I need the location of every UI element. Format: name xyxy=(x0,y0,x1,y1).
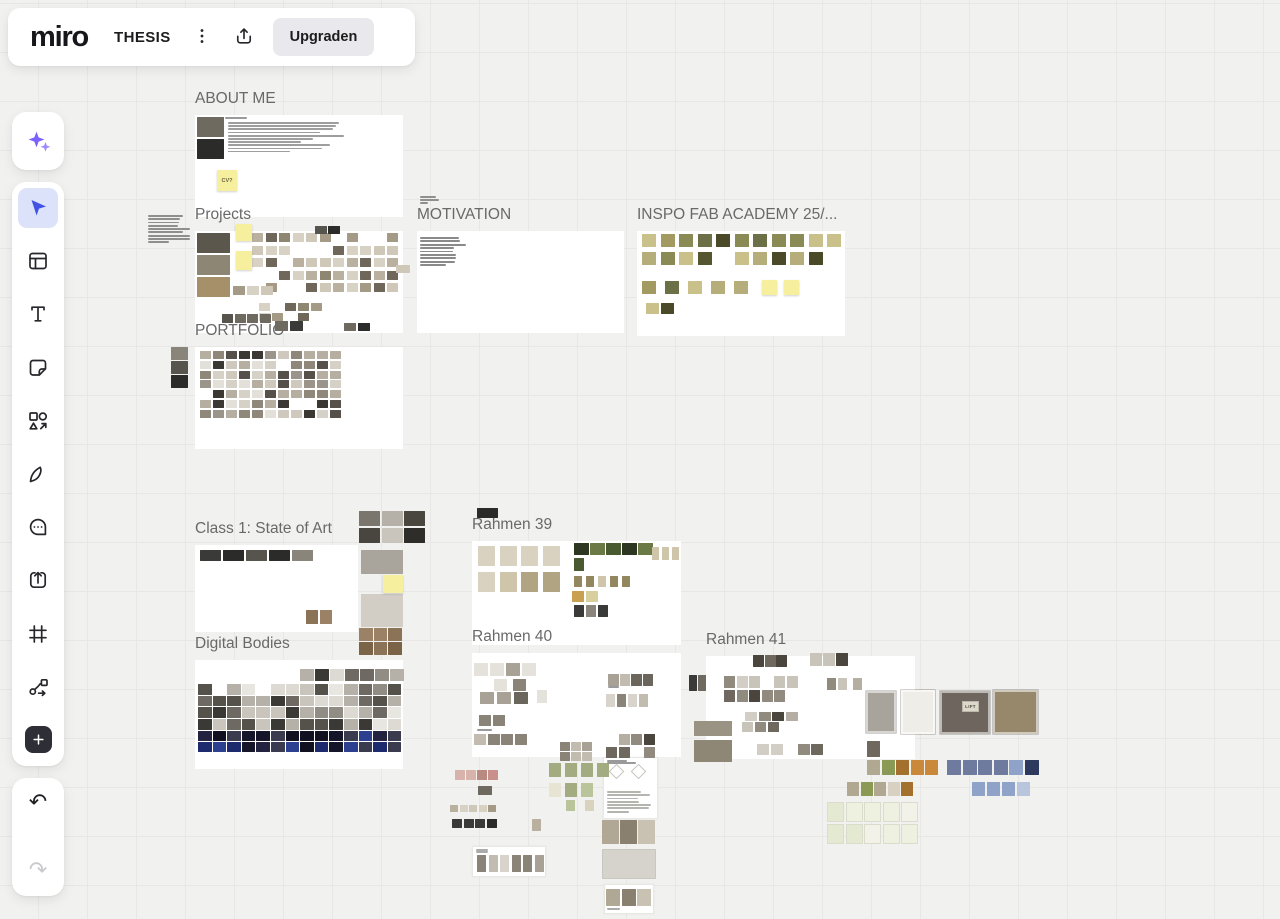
thumbnail-image xyxy=(315,742,329,752)
thumbnail-image xyxy=(213,400,224,408)
image-cluster[interactable] xyxy=(480,692,528,704)
thumbnail-image xyxy=(272,313,283,321)
thumbnail-image xyxy=(344,323,356,331)
text-tool[interactable] xyxy=(18,294,58,334)
thumbnail-image xyxy=(252,233,263,242)
image-cluster[interactable] xyxy=(866,691,896,733)
thumbnail-image xyxy=(745,712,757,721)
image-cluster[interactable] xyxy=(972,782,1030,796)
image-cluster[interactable] xyxy=(478,546,560,592)
thumbnail-image xyxy=(500,855,509,872)
thumbnail-image xyxy=(811,744,823,755)
thumbnail-image xyxy=(226,390,237,398)
thumbnail-image xyxy=(329,684,343,695)
thumbnail-image xyxy=(689,675,697,691)
upgrade-button[interactable]: Upgraden xyxy=(273,18,375,56)
thumbnail-image xyxy=(776,655,787,667)
thumbnail-image xyxy=(315,684,329,695)
text-block[interactable] xyxy=(607,908,621,911)
thumbnail-image xyxy=(734,281,748,294)
image-cluster[interactable] xyxy=(233,286,273,295)
thumbnail-image xyxy=(306,610,318,624)
image-cluster[interactable] xyxy=(361,594,403,627)
frame-title-class-1-state-of-art[interactable]: Class 1: State of Art xyxy=(195,519,332,539)
thumbnail-image xyxy=(698,675,706,691)
frame-title-portfolio[interactable]: PORTFOLIO xyxy=(195,321,284,341)
thumbnail-image xyxy=(306,283,317,292)
thumbnail-image xyxy=(735,234,749,247)
creation-toolbar xyxy=(12,182,64,766)
thumbnail-image xyxy=(360,271,371,280)
thumbnail-image xyxy=(239,380,250,388)
thumbnail-image xyxy=(477,855,486,872)
connector-tool[interactable] xyxy=(18,667,58,707)
thumbnail-image xyxy=(278,410,289,418)
image-cluster[interactable] xyxy=(359,628,402,655)
thumbnail-image xyxy=(901,782,913,796)
thumbnail-image xyxy=(631,674,642,686)
thumbnail-image xyxy=(227,696,241,707)
image-cluster[interactable] xyxy=(853,678,862,690)
thumbnail-image xyxy=(247,314,258,323)
thumbnail-image xyxy=(252,371,263,379)
thumbnail-image xyxy=(608,674,619,686)
thumbnail-image xyxy=(242,742,256,752)
thumbnail-image xyxy=(198,719,212,730)
thumbnail-image xyxy=(488,734,500,745)
frame-title-projects[interactable]: Projects xyxy=(195,205,251,225)
thumbnail-image xyxy=(375,669,389,681)
image-cluster[interactable] xyxy=(689,675,706,691)
image-cluster[interactable] xyxy=(602,820,655,844)
thumbnail-image xyxy=(515,734,527,745)
thumbnail-image xyxy=(226,371,237,379)
text-block[interactable] xyxy=(476,849,492,854)
thumbnail-image xyxy=(597,763,609,777)
thumbnail-image xyxy=(344,731,358,741)
image-cluster[interactable] xyxy=(745,712,798,721)
thumbnail-image xyxy=(883,802,900,822)
image-cluster[interactable] xyxy=(602,849,656,879)
thumbnail-image xyxy=(359,707,373,718)
text-block[interactable] xyxy=(477,729,492,732)
image-cluster[interactable] xyxy=(742,722,779,732)
thumbnail-image xyxy=(771,744,783,755)
thumbnail-image xyxy=(478,572,495,592)
comment-tool[interactable] xyxy=(18,507,58,547)
image-cluster[interactable] xyxy=(477,508,498,518)
image-cluster[interactable] xyxy=(827,802,918,844)
shapes-tool[interactable] xyxy=(18,401,58,441)
thumbnail-image xyxy=(477,770,487,780)
image-cluster[interactable] xyxy=(477,855,544,872)
thumbnail-image xyxy=(772,252,786,265)
thumbnail-image xyxy=(474,663,488,676)
thumbnail-image xyxy=(772,712,784,721)
thumbnail-image xyxy=(514,692,528,704)
image-cluster[interactable] xyxy=(197,117,224,159)
thumbnail-image xyxy=(223,550,244,561)
image-cluster[interactable] xyxy=(606,889,651,906)
image-cluster[interactable] xyxy=(646,303,674,314)
thumbnail-image xyxy=(574,543,589,555)
image-cluster[interactable] xyxy=(396,265,410,273)
thumbnail-image xyxy=(716,234,730,247)
thumbnail-image xyxy=(494,679,507,691)
board-canvas[interactable]: ABOUT MEProjectsMOTIVATIONINSPO FAB ACAD… xyxy=(0,0,1280,919)
image-cluster[interactable] xyxy=(198,684,401,730)
thumbnail-image xyxy=(571,742,581,751)
image-cluster[interactable] xyxy=(694,740,732,762)
thumbnail-image xyxy=(478,786,492,795)
image-cluster[interactable] xyxy=(315,226,340,234)
image-cluster[interactable] xyxy=(200,550,313,561)
sticky-note[interactable] xyxy=(762,280,777,295)
image-cluster[interactable] xyxy=(574,543,653,555)
thumbnail-image xyxy=(882,760,895,775)
thumbnail-image xyxy=(373,719,387,730)
image-cluster[interactable] xyxy=(474,734,527,745)
thumbnail-image xyxy=(198,742,212,752)
thumbnail-image xyxy=(266,246,277,255)
thumbnail-image xyxy=(300,731,314,741)
thumbnail-image xyxy=(347,233,358,242)
image-cluster[interactable] xyxy=(993,690,1038,734)
text-block[interactable] xyxy=(148,215,191,245)
thumbnail-image xyxy=(286,731,300,741)
image-cluster[interactable] xyxy=(867,760,938,775)
image-cluster[interactable] xyxy=(200,351,341,418)
thumbnail-image xyxy=(286,696,300,707)
thumbnail-image xyxy=(474,734,486,745)
thumbnail-image xyxy=(222,314,233,323)
thumbnail-image xyxy=(809,252,823,265)
thumbnail-image xyxy=(260,314,271,323)
thumbnail-image xyxy=(724,676,735,688)
image-cluster[interactable] xyxy=(827,678,847,690)
ai-assistant-button[interactable] xyxy=(18,121,58,161)
app-header: miro THESIS Upgraden xyxy=(8,8,415,66)
thumbnail-image xyxy=(742,722,753,732)
thumbnail-image xyxy=(271,696,285,707)
cursor-icon xyxy=(26,196,50,220)
thumbnail-image xyxy=(374,283,385,292)
thumbnail-image xyxy=(382,528,403,543)
thumbnail-image xyxy=(293,233,304,242)
image-cluster[interactable] xyxy=(642,234,841,265)
frame-title-rahmen-41[interactable]: Rahmen 41 xyxy=(706,630,786,650)
thumbnail-image xyxy=(213,707,227,718)
text-block[interactable] xyxy=(607,760,639,765)
thumbnail-image xyxy=(242,707,256,718)
frame-title-digital-bodies[interactable]: Digital Bodies xyxy=(195,634,290,654)
thumbnail-image xyxy=(489,855,498,872)
thumbnail-image xyxy=(846,824,863,844)
thumbnail-image xyxy=(644,734,655,745)
thumbnail-image xyxy=(637,889,651,906)
image-cluster[interactable] xyxy=(757,744,823,755)
image-cluster[interactable] xyxy=(452,819,497,828)
thumbnail-image xyxy=(523,855,532,872)
thumbnail-image xyxy=(606,694,615,707)
thumbnail-image xyxy=(735,252,749,265)
thumbnail-image xyxy=(500,546,517,566)
thumbnail-image xyxy=(574,605,584,617)
board-title[interactable]: THESIS xyxy=(114,29,171,46)
thumbnail-image xyxy=(479,805,487,812)
thumbnail-image xyxy=(620,674,631,686)
image-cluster[interactable] xyxy=(222,314,271,323)
thumbnail-image xyxy=(566,800,575,811)
export-button[interactable] xyxy=(227,20,261,54)
thumbnail-image xyxy=(549,763,561,777)
image-cluster[interactable] xyxy=(198,731,401,752)
sticky-note[interactable] xyxy=(784,280,799,295)
thumbnail-image xyxy=(293,258,304,267)
thumbnail-image xyxy=(300,684,314,695)
image-cluster[interactable] xyxy=(455,770,498,780)
thumbnail-image xyxy=(388,684,402,695)
thumbnail-image xyxy=(488,770,498,780)
thumbnail-image xyxy=(711,281,725,294)
thumbnail-image xyxy=(628,694,637,707)
text-block[interactable] xyxy=(608,686,621,689)
thumbnail-image xyxy=(317,390,328,398)
image-cluster[interactable] xyxy=(171,347,188,388)
board-menu-button[interactable] xyxy=(185,20,219,54)
thumbnail-image xyxy=(330,669,344,681)
text-block[interactable] xyxy=(228,122,345,154)
text-block[interactable] xyxy=(420,237,469,268)
thumbnail-image xyxy=(359,628,373,641)
image-cluster[interactable] xyxy=(532,819,541,831)
image-cluster[interactable] xyxy=(197,233,230,297)
thumbnail-image xyxy=(317,351,328,359)
miro-logo[interactable]: miro xyxy=(30,23,88,52)
image-cluster[interactable] xyxy=(642,281,771,294)
thumbnail-image xyxy=(261,286,273,295)
image-cluster[interactable] xyxy=(810,653,848,666)
thumbnail-image xyxy=(374,628,388,641)
frame-title-inspo-fab-academy[interactable]: INSPO FAB ACADEMY 25/... xyxy=(637,205,837,225)
thumbnail-image xyxy=(330,380,341,388)
thumbnail-image xyxy=(574,558,584,571)
image-cluster[interactable] xyxy=(306,610,332,624)
thumbnail-image xyxy=(213,410,224,418)
thumbnail-image xyxy=(359,642,373,655)
thumbnail-image xyxy=(344,684,358,695)
image-cluster[interactable] xyxy=(847,782,913,796)
image-cluster[interactable] xyxy=(300,669,404,681)
text-block[interactable] xyxy=(225,117,249,120)
select-tool[interactable] xyxy=(18,188,58,228)
text-block[interactable] xyxy=(420,196,440,205)
thumbnail-image xyxy=(679,234,693,247)
thumbnail-image xyxy=(320,271,331,280)
thumbnail-image xyxy=(200,361,211,369)
thumbnail-image xyxy=(387,233,398,242)
thumbnail-image xyxy=(246,550,267,561)
thumbnail-image xyxy=(661,234,675,247)
thumbnail-image xyxy=(317,361,328,369)
thumbnail-image xyxy=(787,676,798,688)
thumbnail-image xyxy=(963,760,977,775)
thumbnail-image xyxy=(469,805,477,812)
frame-title-about-me[interactable]: ABOUT ME xyxy=(195,89,276,109)
thumbnail-image xyxy=(252,380,263,388)
thumbnail-image xyxy=(198,696,212,707)
image-cluster[interactable] xyxy=(479,715,505,726)
thumbnail-image xyxy=(388,707,402,718)
thumbnail-image xyxy=(571,752,581,761)
thumbnail-image xyxy=(522,663,536,676)
thumbnail-image xyxy=(213,719,227,730)
thumbnail-image xyxy=(867,741,880,757)
thumbnail-image xyxy=(759,712,771,721)
redo-button[interactable]: ↷ xyxy=(29,860,47,882)
thumbnail-image xyxy=(574,576,582,587)
sticky-note[interactable] xyxy=(236,251,252,270)
sticky-note[interactable] xyxy=(383,575,403,593)
frame-title-rahmen-40[interactable]: Rahmen 40 xyxy=(472,627,552,647)
image-cluster[interactable] xyxy=(572,591,598,602)
image-cluster[interactable] xyxy=(608,674,653,686)
thumbnail-image xyxy=(252,390,263,398)
image-cluster[interactable] xyxy=(867,741,880,757)
text-block[interactable] xyxy=(607,791,653,814)
image-cluster[interactable] xyxy=(560,742,592,761)
sticky-note-tool[interactable] xyxy=(18,348,58,388)
thumbnail-image xyxy=(487,819,497,828)
thumbnail-image xyxy=(213,351,224,359)
templates-tool[interactable] xyxy=(18,241,58,281)
frame-tool[interactable] xyxy=(18,614,58,654)
image-cluster[interactable] xyxy=(574,605,608,617)
image-cluster[interactable] xyxy=(574,558,584,571)
thumbnail-image xyxy=(344,719,358,730)
thumbnail-image xyxy=(993,690,1038,734)
thumbnail-image xyxy=(330,390,341,398)
thumbnail-image xyxy=(374,271,385,280)
thumbnail-image xyxy=(606,747,617,758)
image-cluster[interactable] xyxy=(753,655,787,667)
thumbnail-image xyxy=(646,303,659,314)
thumbnail-image xyxy=(790,252,804,265)
image-cluster[interactable] xyxy=(574,576,630,587)
thumbnail-image xyxy=(359,684,373,695)
thumbnail-image xyxy=(765,655,776,667)
thumbnail-image xyxy=(643,674,654,686)
thumbnail-image xyxy=(278,351,289,359)
thumbnail-image xyxy=(972,782,985,796)
image-cluster[interactable] xyxy=(275,321,303,331)
image-cluster[interactable] xyxy=(652,547,679,560)
image-cluster[interactable] xyxy=(549,763,609,797)
image-cluster[interactable] xyxy=(694,721,732,736)
image-cluster[interactable] xyxy=(252,233,398,292)
thumbnail-image xyxy=(200,550,221,561)
image-cluster[interactable] xyxy=(724,676,798,702)
thumbnail-image xyxy=(198,707,212,718)
thumbnail-image xyxy=(585,800,594,811)
image-cluster[interactable] xyxy=(940,691,990,734)
thumbnail-image xyxy=(774,690,785,702)
image-cluster[interactable] xyxy=(344,323,370,331)
thumbnail-image xyxy=(347,246,358,255)
thumbnail-image xyxy=(642,252,656,265)
thumbnail-image xyxy=(753,252,767,265)
pen-tool[interactable] xyxy=(18,454,58,494)
sticky-note-icon xyxy=(26,356,50,380)
image-cluster[interactable] xyxy=(361,550,403,574)
sticky-note[interactable]: CV? xyxy=(217,170,237,191)
thumbnail-image xyxy=(266,233,277,242)
image-cluster[interactable] xyxy=(450,805,496,812)
frame-title-rahmen-39[interactable]: Rahmen 39 xyxy=(472,515,552,535)
upload-tool[interactable] xyxy=(18,560,58,600)
image-cluster[interactable] xyxy=(537,690,547,703)
thumbnail-image xyxy=(269,550,290,561)
thumbnail-image xyxy=(359,696,373,707)
image-cluster[interactable] xyxy=(359,511,425,543)
image-cluster[interactable] xyxy=(901,690,935,734)
image-cluster[interactable] xyxy=(478,786,492,795)
thumbnail-image xyxy=(874,782,886,796)
thumbnail-image xyxy=(620,820,637,844)
thumbnail-image xyxy=(809,234,823,247)
thumbnail-image xyxy=(291,390,302,398)
add-more-tool[interactable] xyxy=(18,720,58,760)
thumbnail-image xyxy=(361,594,403,627)
image-cluster[interactable] xyxy=(947,760,1039,775)
image-cluster[interactable] xyxy=(474,663,536,676)
thumbnail-image xyxy=(278,371,289,379)
thumbnail-image xyxy=(911,760,924,775)
thumbnail-image xyxy=(315,669,329,681)
thumbnail-image xyxy=(333,258,344,267)
image-cluster[interactable] xyxy=(494,679,526,691)
thumbnail-image xyxy=(304,371,315,379)
thumbnail-image xyxy=(987,782,1000,796)
thumbnail-image xyxy=(749,690,760,702)
thumbnail-image xyxy=(388,696,402,707)
upload-icon xyxy=(26,568,50,592)
frame-title-motivation[interactable]: MOTIVATION xyxy=(417,205,511,225)
thumbnail-image xyxy=(300,696,314,707)
sticky-note[interactable] xyxy=(236,224,252,241)
thumbnail-image xyxy=(737,676,748,688)
thumbnail-image xyxy=(390,669,404,681)
thumbnail-image xyxy=(286,684,300,695)
thumbnail-image xyxy=(867,760,880,775)
thumbnail-image xyxy=(315,696,329,707)
thumbnail-image xyxy=(622,543,637,555)
thumbnail-image xyxy=(304,351,315,359)
thumbnail-image xyxy=(455,770,465,780)
undo-button[interactable]: ↶ xyxy=(29,792,47,814)
thumbnail-image xyxy=(661,252,675,265)
thumbnail-image xyxy=(317,400,328,408)
thumbnail-image xyxy=(598,576,606,587)
image-cluster[interactable] xyxy=(566,800,594,811)
thumbnail-image xyxy=(360,669,374,681)
image-cluster[interactable] xyxy=(606,694,648,707)
image-cluster[interactable] xyxy=(606,734,655,758)
thumbnail-image xyxy=(610,576,618,587)
thumbnail-image xyxy=(293,271,304,280)
thumbnail-image xyxy=(581,763,593,777)
thumbnail-image xyxy=(278,390,289,398)
